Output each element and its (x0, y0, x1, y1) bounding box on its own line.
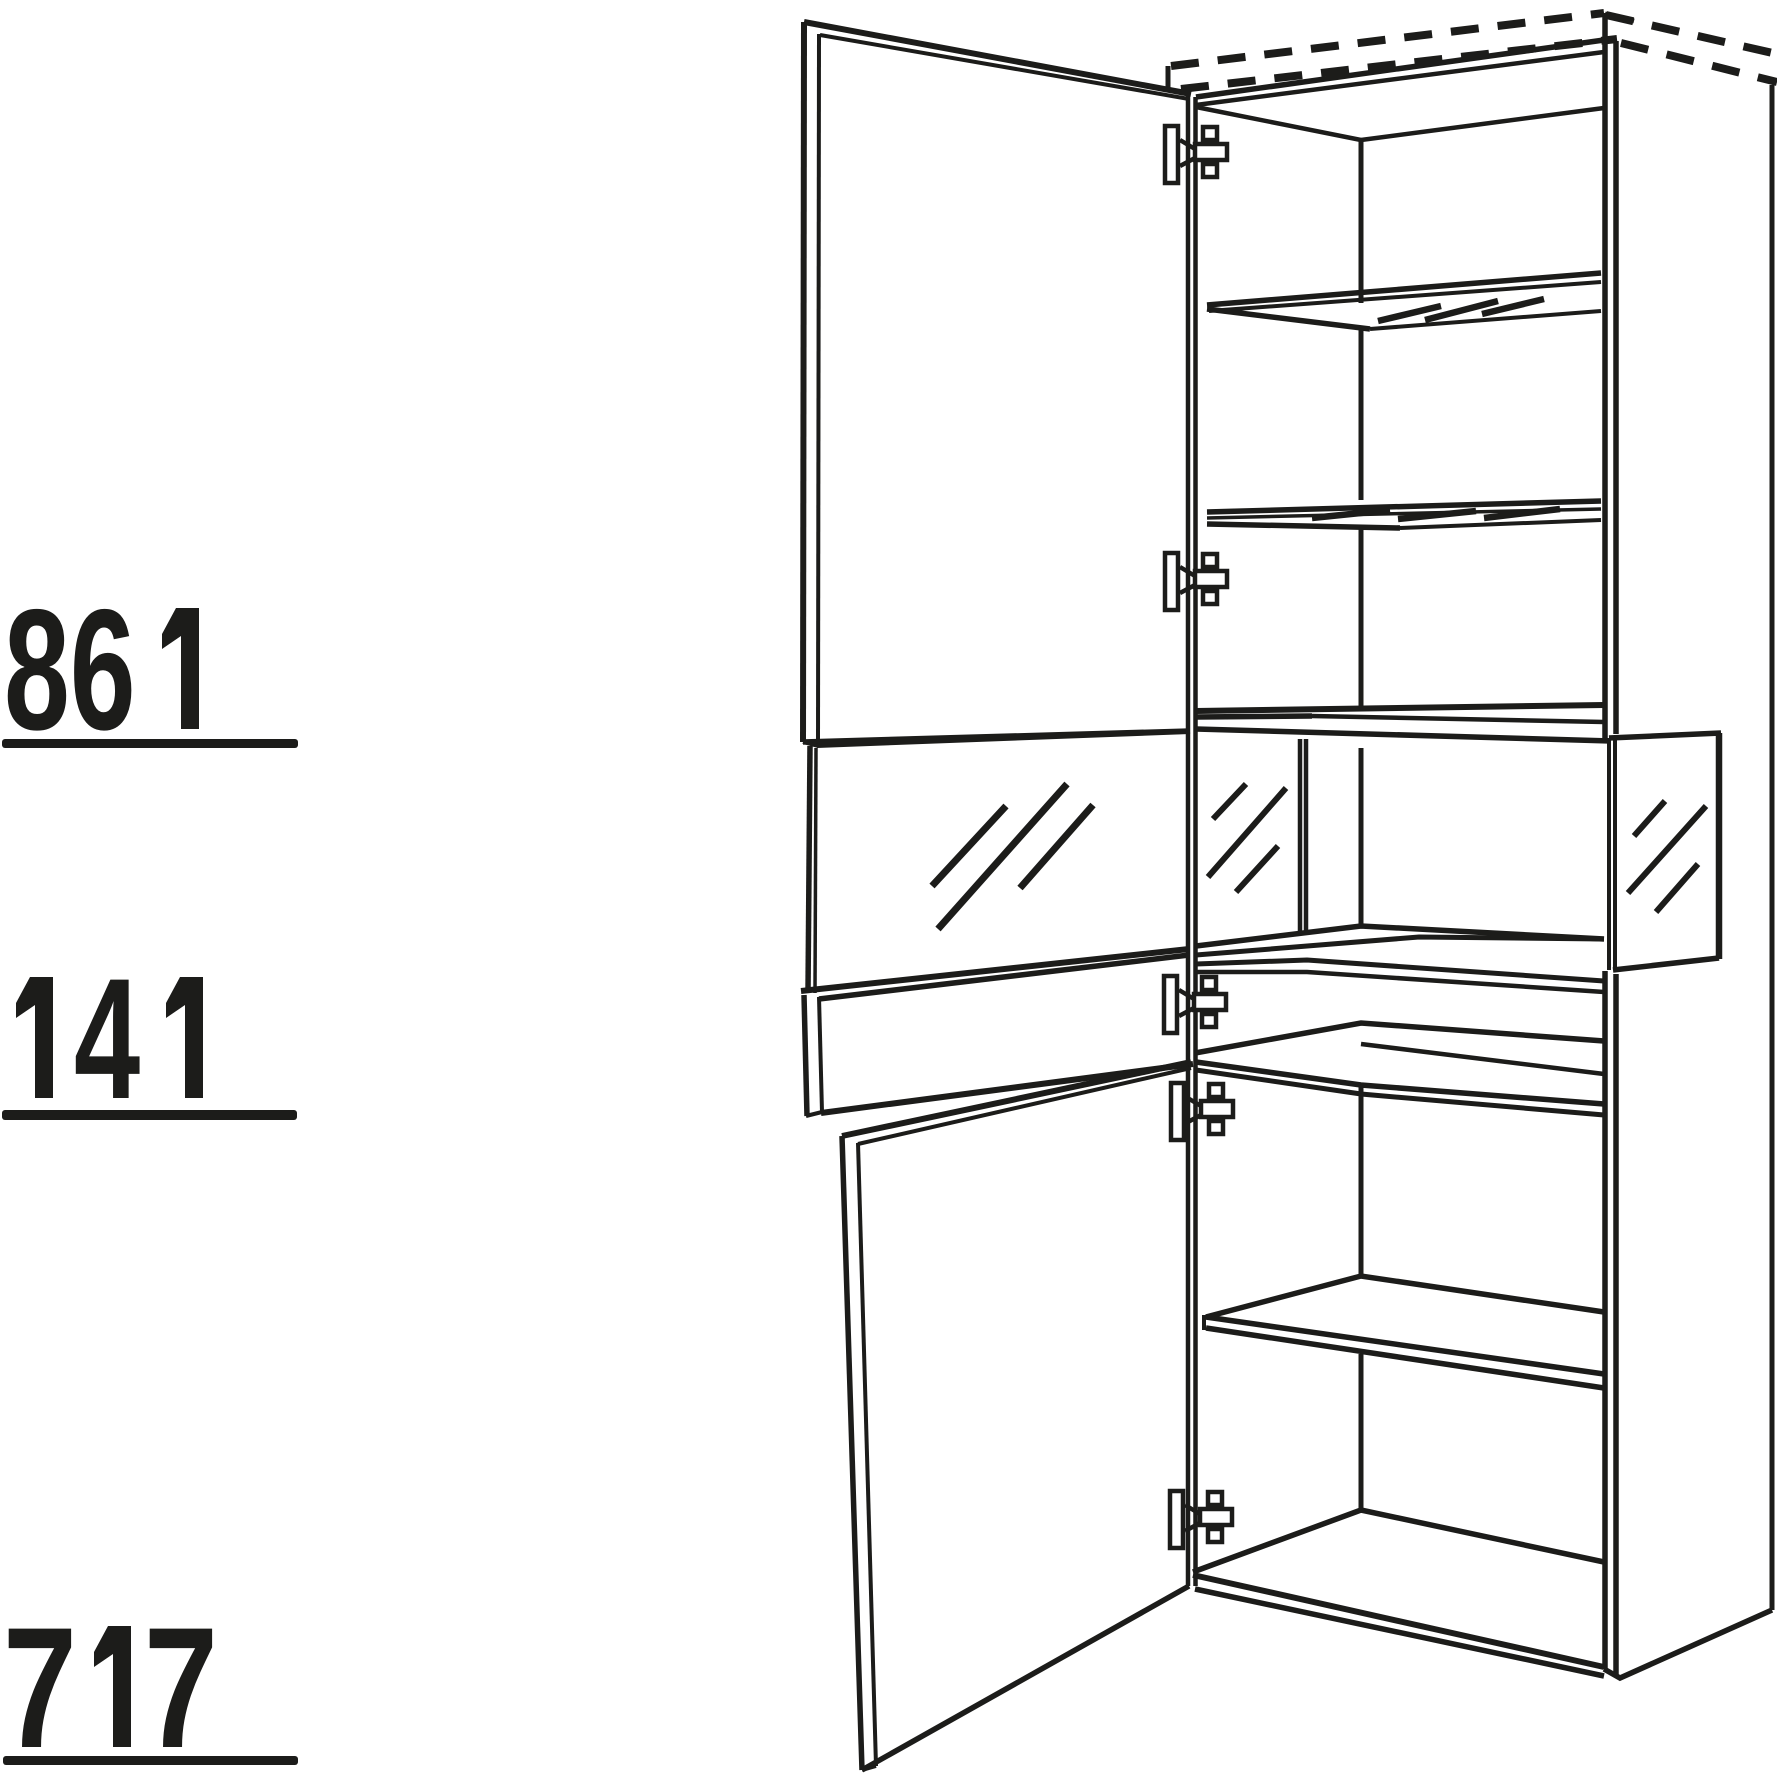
svg-text:7: 7 (144, 1591, 218, 1777)
svg-text:86: 86 (4, 574, 136, 766)
svg-text:4: 4 (74, 943, 140, 1135)
svg-text:7: 7 (3, 1591, 77, 1777)
